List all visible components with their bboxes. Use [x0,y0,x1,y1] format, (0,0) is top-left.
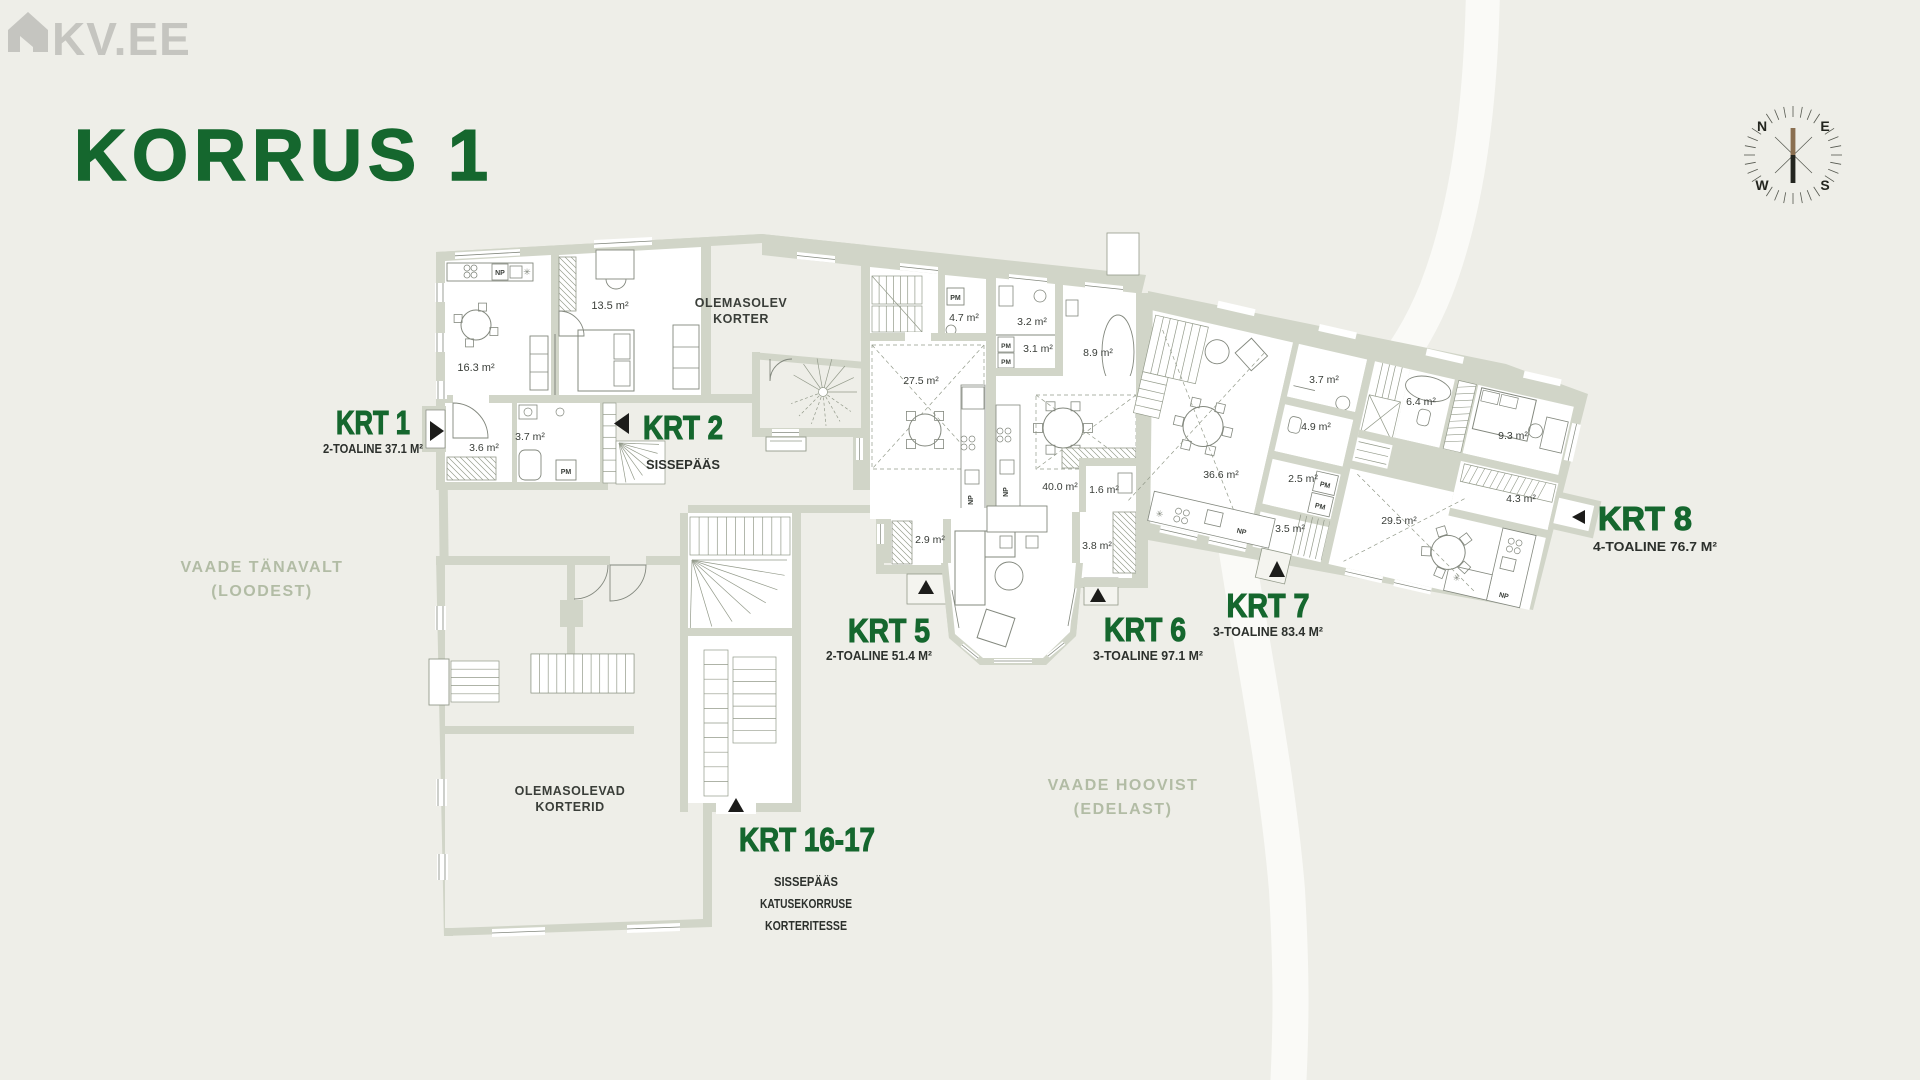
svg-text:KV.EE: KV.EE [52,13,191,65]
svg-text:4.3 m²: 4.3 m² [1506,493,1536,505]
svg-text:NP: NP [968,495,975,505]
svg-text:3.5 m²: 3.5 m² [1275,523,1305,535]
svg-text:OLEMASOLEV: OLEMASOLEV [695,296,788,310]
svg-text:VAADE HOOVIST: VAADE HOOVIST [1048,777,1199,794]
svg-text:KORTERID: KORTERID [535,800,604,814]
svg-text:KRT 7: KRT 7 [1227,587,1310,624]
svg-text:3.2 m²: 3.2 m² [1017,316,1047,328]
svg-text:NP: NP [495,270,505,277]
svg-text:3.1 m²: 3.1 m² [1023,343,1053,355]
svg-text:S: S [1820,177,1829,193]
svg-text:KRT 6: KRT 6 [1104,611,1186,648]
svg-text:KRT 8: KRT 8 [1598,500,1692,537]
svg-text:9.3 m²: 9.3 m² [1498,430,1528,442]
svg-text:PM: PM [1001,359,1011,366]
svg-text:OLEMASOLEVAD: OLEMASOLEVAD [515,784,626,798]
svg-text:13.5 m²: 13.5 m² [591,300,629,312]
svg-text:PM: PM [561,469,572,476]
svg-text:1.6 m²: 1.6 m² [1089,484,1119,496]
svg-text:VAADE TÄNAVALT: VAADE TÄNAVALT [181,558,344,576]
svg-text:(LOODEST): (LOODEST) [211,583,313,600]
svg-text:2.5 m²: 2.5 m² [1288,473,1318,485]
svg-text:PM: PM [1001,343,1011,350]
svg-text:4-TOALINE 76.7 M²: 4-TOALINE 76.7 M² [1593,539,1718,554]
svg-text:NP: NP [1003,487,1010,497]
svg-text:KORTER: KORTER [713,312,769,326]
svg-text:2.9 m²: 2.9 m² [915,534,945,546]
svg-text:KRT 5: KRT 5 [848,612,930,649]
svg-text:3-TOALINE 83.4 M²: 3-TOALINE 83.4 M² [1213,624,1324,639]
svg-text:4.7 m²: 4.7 m² [949,312,979,324]
svg-text:KRT 1: KRT 1 [336,404,410,441]
svg-text:3.8 m²: 3.8 m² [1082,540,1112,552]
svg-text:KATUSEKORRUSE: KATUSEKORRUSE [760,897,852,911]
svg-text:✳: ✳ [523,267,531,277]
svg-text:E: E [1820,118,1829,134]
svg-text:N: N [1757,118,1767,134]
svg-text:29.5 m²: 29.5 m² [1381,515,1417,527]
svg-text:3.7 m²: 3.7 m² [1309,374,1339,386]
svg-text:3.7 m²: 3.7 m² [515,431,545,443]
svg-text:(EDELAST): (EDELAST) [1074,801,1173,818]
svg-text:2-TOALINE 37.1 M²: 2-TOALINE 37.1 M² [323,441,424,456]
svg-text:KORRUS 1: KORRUS 1 [74,116,494,196]
svg-text:4.9 m²: 4.9 m² [1301,421,1331,433]
svg-text:8.9 m²: 8.9 m² [1083,347,1113,359]
svg-text:16.3 m²: 16.3 m² [457,362,495,374]
svg-text:6.4 m²: 6.4 m² [1406,396,1436,408]
svg-text:PM: PM [950,295,961,302]
svg-text:KRT 16-17: KRT 16-17 [739,821,875,858]
svg-text:SISSEPÄÄS: SISSEPÄÄS [646,457,720,472]
svg-text:SISSEPÄÄS: SISSEPÄÄS [774,874,838,889]
svg-text:36.6 m²: 36.6 m² [1203,469,1239,481]
svg-text:27.5 m²: 27.5 m² [903,375,939,387]
svg-text:KRT 2: KRT 2 [643,409,723,446]
svg-text:40.0 m²: 40.0 m² [1042,481,1078,493]
svg-text:2-TOALINE 51.4 M²: 2-TOALINE 51.4 M² [826,648,933,663]
svg-text:W: W [1755,177,1769,193]
svg-text:3-TOALINE 97.1 M²: 3-TOALINE 97.1 M² [1093,648,1204,663]
svg-text:3.6 m²: 3.6 m² [469,442,499,454]
svg-text:KORTERITESSE: KORTERITESSE [765,919,847,933]
